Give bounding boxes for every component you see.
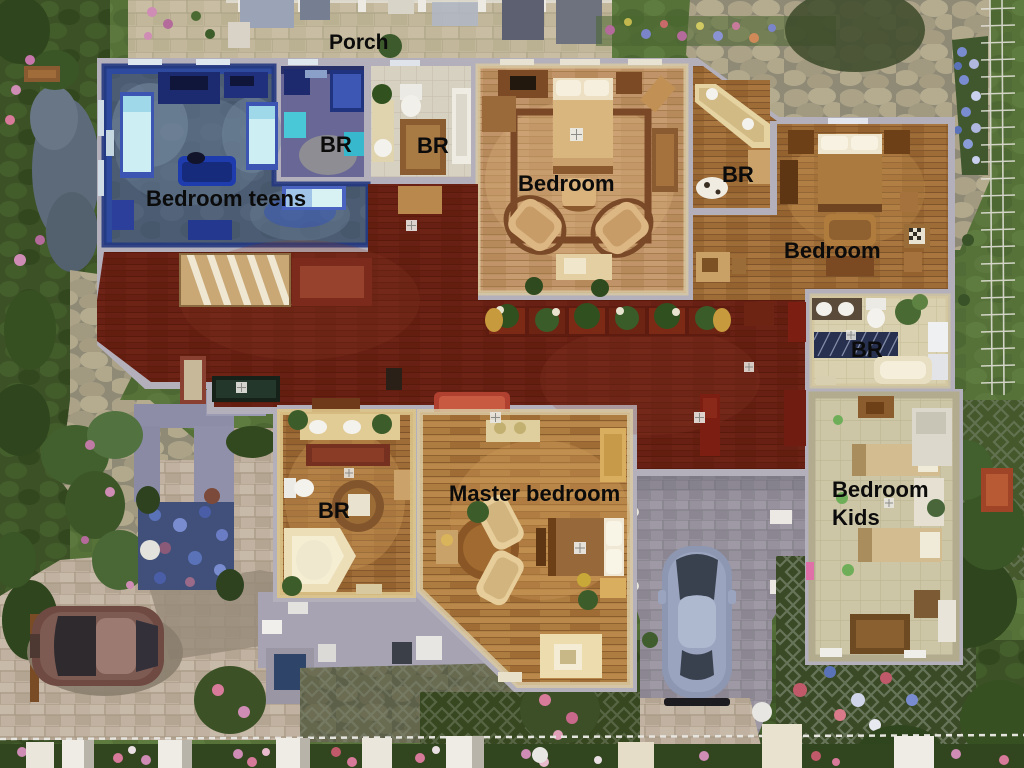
- svg-text:BR: BR: [851, 337, 883, 362]
- svg-text:BR: BR: [722, 162, 754, 187]
- svg-text:Bedroom: Bedroom: [518, 171, 615, 196]
- svg-text:Bedroom: Bedroom: [784, 238, 881, 263]
- svg-text:Porch: Porch: [329, 31, 389, 54]
- svg-text:BR: BR: [417, 133, 449, 158]
- svg-text:Kids: Kids: [832, 505, 880, 530]
- svg-text:Master bedroom: Master bedroom: [449, 481, 620, 506]
- svg-text:BR: BR: [320, 132, 352, 157]
- svg-text:BR: BR: [318, 498, 350, 523]
- svg-text:Bedroom: Bedroom: [832, 477, 929, 502]
- svg-text:Bedroom teens: Bedroom teens: [146, 186, 306, 211]
